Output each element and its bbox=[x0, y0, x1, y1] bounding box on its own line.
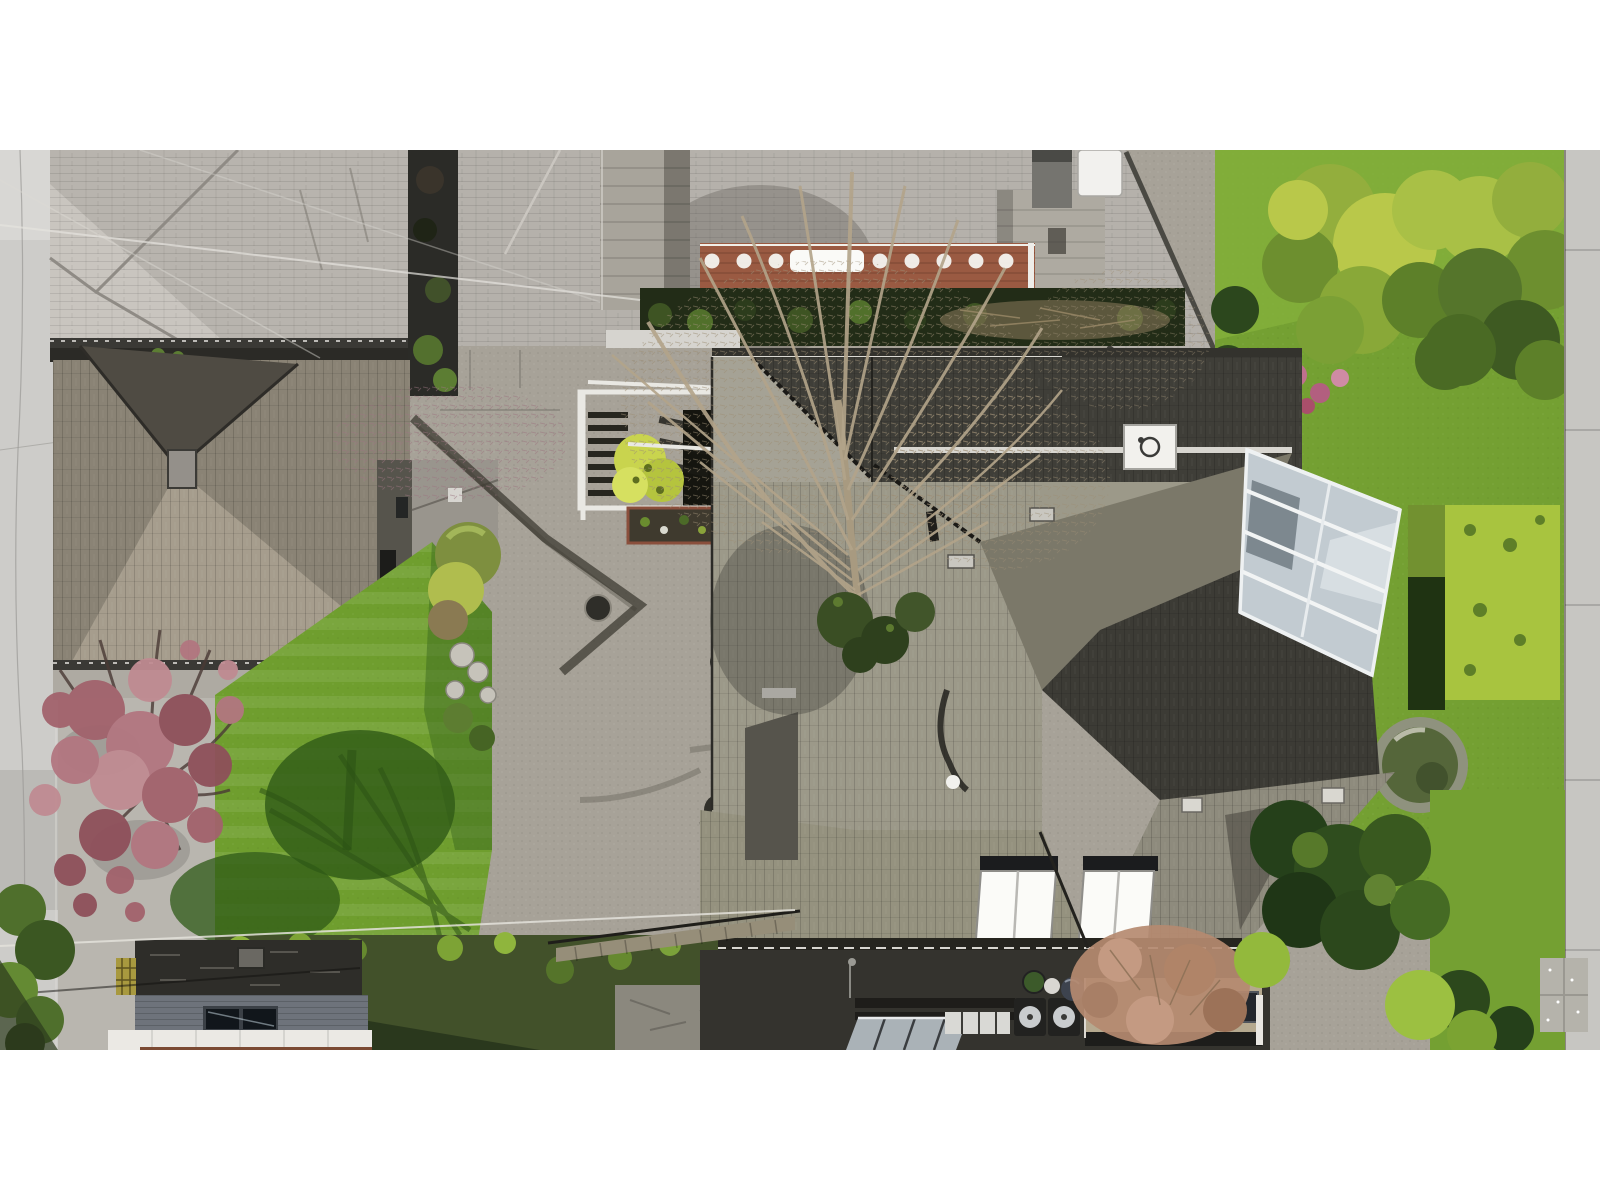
white-vent-box bbox=[1124, 425, 1176, 469]
fan-hub-2 bbox=[1061, 1014, 1067, 1020]
trunk-shadow bbox=[347, 750, 352, 850]
utility-box bbox=[238, 948, 264, 968]
passage-shrub bbox=[413, 335, 443, 365]
roof-vent-small-2 bbox=[1322, 788, 1344, 803]
hedge-block bbox=[1445, 577, 1560, 700]
aerial-photo bbox=[0, 150, 1600, 1050]
hedge-shade bbox=[1408, 505, 1445, 577]
side-window bbox=[396, 497, 408, 518]
bright-bush bbox=[1234, 932, 1290, 988]
pipe-cap bbox=[848, 958, 856, 966]
white-chimney-cap bbox=[1078, 150, 1122, 196]
shrub bbox=[443, 703, 473, 733]
bright-bush-2 bbox=[1385, 970, 1455, 1040]
roof-vent-top bbox=[1032, 150, 1072, 162]
passage-shrub bbox=[425, 277, 451, 303]
vent-dot bbox=[1138, 437, 1144, 443]
chimney bbox=[168, 450, 196, 488]
hose-reel bbox=[1023, 971, 1045, 993]
roof-shingle-texture bbox=[50, 150, 408, 340]
deck-post bbox=[1028, 243, 1034, 288]
rust-strip bbox=[140, 1047, 372, 1050]
white-spool bbox=[1044, 978, 1060, 994]
chimney2-flue bbox=[1048, 228, 1066, 254]
round-bush-brown bbox=[428, 600, 468, 640]
sidewalk-surface bbox=[1565, 150, 1600, 1050]
aerial-photo-canvas bbox=[0, 150, 1600, 1050]
bench-row bbox=[855, 998, 1015, 1008]
fan-hub bbox=[1027, 1014, 1033, 1020]
pond-moss bbox=[1416, 762, 1448, 794]
dried-hydrangea-shrub bbox=[1070, 925, 1250, 1045]
left-dark-strip bbox=[745, 712, 798, 860]
chimney-shadow-side bbox=[664, 150, 690, 310]
white-roof-dot bbox=[946, 775, 960, 789]
window-band bbox=[945, 1012, 1010, 1034]
purple-twig-canopy bbox=[332, 384, 568, 500]
top-left-house-roof bbox=[50, 150, 408, 363]
hedge-dark-arm bbox=[1408, 577, 1445, 710]
yellow-lattice bbox=[116, 958, 136, 995]
twig-canopy-3 bbox=[1030, 270, 1210, 410]
corner-post bbox=[1256, 995, 1263, 1045]
passage-shrub bbox=[413, 218, 437, 242]
page-background bbox=[0, 0, 1600, 1200]
right-sidewalk bbox=[1565, 150, 1600, 1050]
eave-band bbox=[50, 338, 408, 348]
shrub bbox=[469, 725, 495, 751]
roof-vent-small bbox=[1182, 798, 1202, 812]
corner-shrub-mass bbox=[1424, 162, 1585, 400]
passage-shrub bbox=[416, 166, 444, 194]
